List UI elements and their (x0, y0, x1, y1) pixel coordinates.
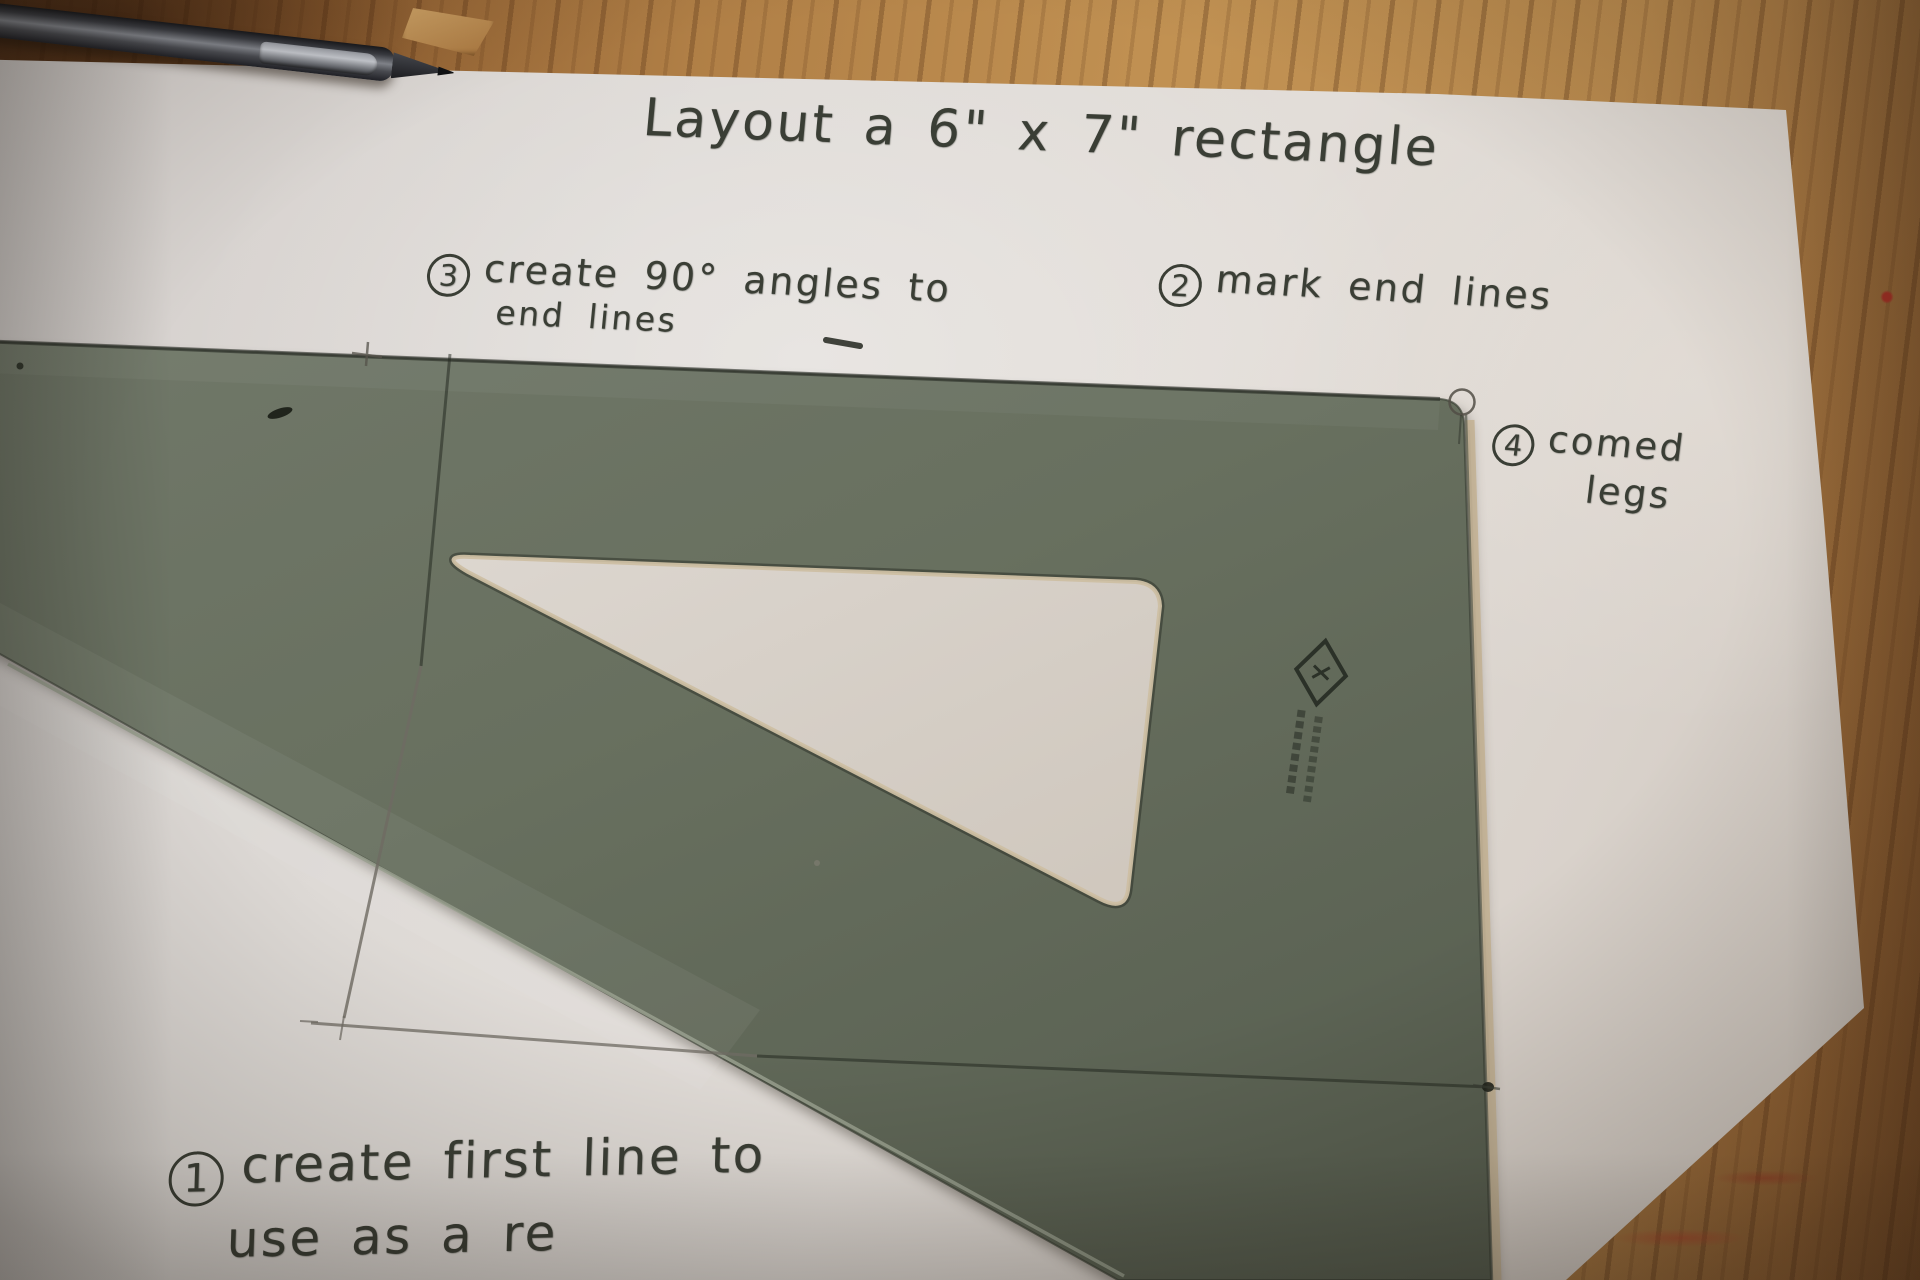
step-3-line2: end lines (494, 293, 679, 340)
circled-number-1: 1 (168, 1151, 224, 1207)
drafting-triangle-layer (0, 0, 1920, 1280)
circled-number-2: 2 (1157, 263, 1204, 308)
circled-number-4: 4 (1490, 423, 1537, 468)
pencil-lead (437, 67, 454, 78)
surface-fleck-small (17, 363, 24, 370)
step-1-line1: create first line to (240, 1126, 766, 1195)
note-step-1: 1create first line to use as a re (164, 1117, 1150, 1280)
step-4-line2: legs (1583, 469, 1674, 518)
step-4-line1: comed (1546, 418, 1689, 470)
photo-stage: Layout a 6" x 7" rectangle 3create 90° a… (0, 0, 1920, 1280)
step-1-line2: use as a re (226, 1204, 559, 1269)
note-step-4: 4comed legs (1479, 414, 1915, 582)
corner-mark-bottom-left (300, 1016, 344, 1040)
circled-number-3: 3 (425, 253, 472, 298)
cutout-paper-speck (814, 860, 820, 866)
pencil-tip (391, 52, 442, 83)
